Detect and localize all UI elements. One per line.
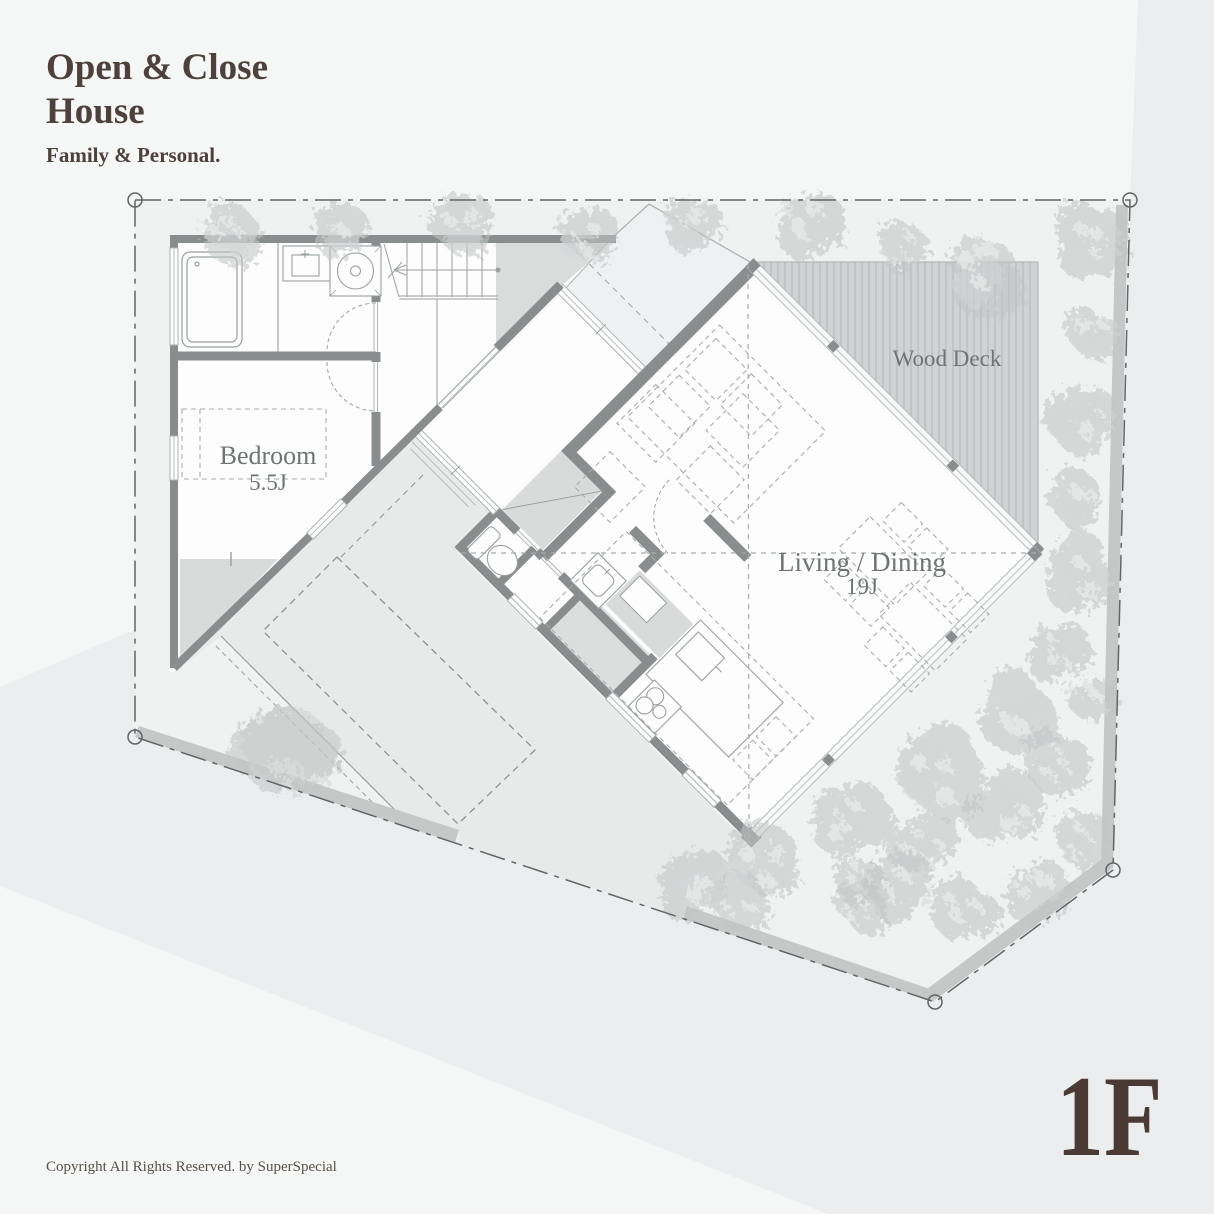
svg-text:1F: 1F <box>1056 1052 1162 1181</box>
svg-text:Family & Personal.: Family & Personal. <box>46 143 220 167</box>
svg-text:19J: 19J <box>846 574 878 599</box>
svg-text:Bedroom: Bedroom <box>220 441 317 470</box>
svg-text:Wood Deck: Wood Deck <box>893 346 1002 371</box>
svg-text:Copyright All Rights Reserved.: Copyright All Rights Reserved. by SuperS… <box>46 1159 337 1175</box>
svg-text:Living / Dining: Living / Dining <box>778 547 946 577</box>
svg-text:5.5J: 5.5J <box>249 470 287 495</box>
svg-text:House: House <box>46 91 145 132</box>
svg-text:Open & Close: Open & Close <box>46 47 268 88</box>
